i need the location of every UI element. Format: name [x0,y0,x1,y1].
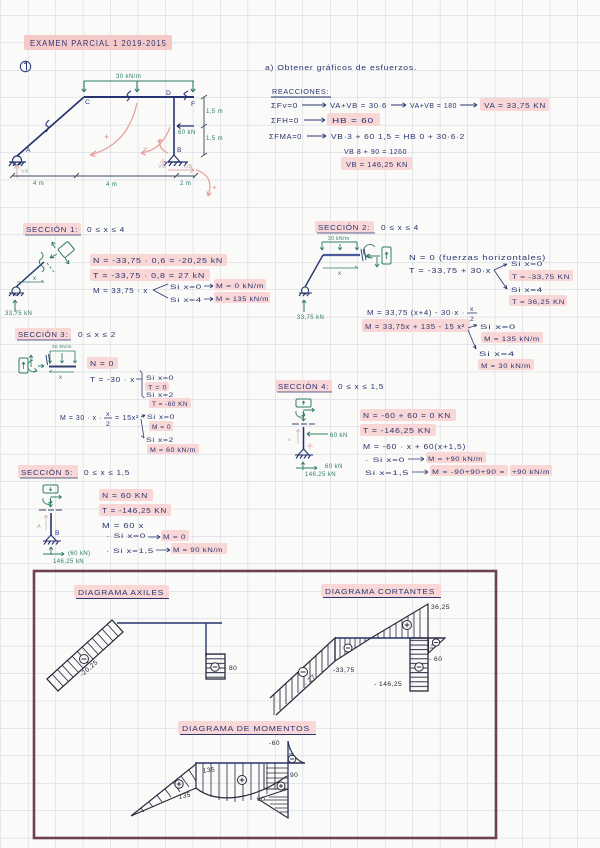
svg-text:ΣFv=0: ΣFv=0 [271,101,298,110]
svg-text:4 m: 4 m [33,181,44,187]
svg-text:Si x=0: Si x=0 [146,375,174,382]
svg-text:Si x=2: Si x=2 [146,392,174,399]
svg-text:VA+VB = 180: VA+VB = 180 [410,101,457,110]
svg-text:Si x=0: Si x=0 [511,261,543,268]
svg-text:A: A [26,147,31,154]
svg-text:HB: HB [184,164,193,170]
svg-text:T = -146,25 KN: T = -146,25 KN [363,426,431,435]
svg-text:ΣFH=0: ΣFH=0 [271,116,299,125]
svg-text:60 kN: 60 kN [330,433,348,439]
svg-text:0 ≤ x ≤ 4: 0 ≤ x ≤ 4 [381,223,419,232]
svg-text:VA+VB = 30·6: VA+VB = 30·6 [330,101,387,110]
svg-text:T = 36,25 KN: T = 36,25 KN [512,299,565,306]
svg-text:A: A [37,524,41,530]
svg-text:· Si x=1,5: · Si x=1,5 [106,548,154,555]
svg-text:M = 30 · x ·: M = 30 · x · [60,413,102,422]
svg-text:M = 30 kN/m: M = 30 kN/m [481,363,531,370]
svg-text:36,25: 36,25 [431,604,450,611]
svg-text:x: x [288,437,291,443]
svg-text:0 ≤ x ≤ 1,5: 0 ≤ x ≤ 1,5 [84,468,130,477]
svg-text:M = -60 · x + 60(x+1,5): M = -60 · x + 60(x+1,5) [363,442,466,451]
svg-text:146,25 kN: 146,25 kN [305,472,336,478]
svg-text:F: F [191,101,196,108]
svg-text:M = 33,75 (x+4) - 30·x ·: M = 33,75 (x+4) - 30·x · [367,308,465,317]
svg-text:146,25 kN: 146,25 kN [53,559,84,565]
svg-text:33,75 kN: 33,75 kN [5,311,32,317]
svg-text:60 kN: 60 kN [178,130,196,136]
svg-text:DIAGRAMA AXILES: DIAGRAMA AXILES [78,588,164,597]
svg-text:30 kN/m: 30 kN/m [116,74,141,80]
svg-text:Si x=4: Si x=4 [511,287,543,294]
svg-text:60 kN: 60 kN [325,464,343,470]
svg-text:VB = 146,25 KN: VB = 146,25 KN [346,160,408,169]
svg-text:VB·3 + 60 1,5 = HB 0 + 30·6·2: VB·3 + 60 1,5 = HB 0 + 30·6·2 [331,132,465,141]
svg-text:M = 33,75x + 135 - 15 x²: M = 33,75x + 135 - 15 x² [365,322,465,331]
svg-text:x: x [59,375,62,381]
svg-text:M = 33,75 · x: M = 33,75 · x [93,286,148,295]
svg-text:30 kN/m: 30 kN/m [52,344,72,349]
svg-text:Si x=0: Si x=0 [147,414,175,421]
svg-text:Si x=1,5: Si x=1,5 [365,470,409,477]
svg-text:D: D [166,90,171,97]
svg-text:0 ≤ x ≤ 4: 0 ≤ x ≤ 4 [87,225,125,234]
svg-text:+: + [212,183,217,192]
svg-text:N = -60 + 60 = 0 KN: N = -60 + 60 = 0 KN [363,411,451,420]
svg-text:VA = 33,75 KN: VA = 33,75 KN [484,101,546,110]
svg-text:1,5 m: 1,5 m [206,136,223,142]
svg-text:Si x=0: Si x=0 [170,284,202,291]
svg-text:80: 80 [229,665,237,672]
svg-text:Si x=4: Si x=4 [170,297,202,304]
svg-text:- 146,25: - 146,25 [374,681,402,688]
svg-text:B: B [55,530,60,537]
svg-text:N = 60 KN: N = 60 KN [102,491,148,500]
svg-text:T = -33,75 + 30·x: T = -33,75 + 30·x [409,266,491,275]
svg-text:x: x [33,276,36,282]
svg-text:x: x [106,411,110,418]
svg-text:Si x=2: Si x=2 [146,437,174,444]
svg-text:x: x [338,271,341,277]
svg-text:SECCIÓN 3:: SECCIÓN 3: [18,330,68,339]
svg-text:- 60: - 60 [429,656,442,663]
svg-text:Si x=4: Si x=4 [479,351,515,358]
svg-text:−: − [143,143,148,153]
svg-text:M = 135 kN/m: M = 135 kN/m [484,336,540,343]
svg-text:T = -33,75 · 0,8 = 27 kN: T = -33,75 · 0,8 = 27 kN [93,271,205,280]
svg-text:C: C [85,99,90,106]
svg-text:1,5 m: 1,5 m [206,109,223,115]
svg-text:T = 0: T = 0 [148,385,167,392]
svg-text:N = -33,75 · 0,6 = -20,25 kN: N = -33,75 · 0,6 = -20,25 kN [93,256,223,265]
svg-text:SECCIÓN 4:: SECCIÓN 4: [278,382,329,391]
svg-text:T = -60 KN: T = -60 KN [152,401,188,408]
svg-text:0 ≤ x ≤ 2: 0 ≤ x ≤ 2 [78,330,116,339]
svg-text:VB 8 + 90 = 1260: VB 8 + 90 = 1260 [344,147,407,156]
svg-text:M = 0: M = 0 [152,424,171,431]
svg-text:· Si x=0: · Si x=0 [365,457,405,464]
svg-text:2: 2 [106,421,110,428]
svg-text:33,75 kN: 33,75 kN [297,315,324,321]
svg-text:0 ≤ x ≤ 1,5: 0 ≤ x ≤ 1,5 [338,382,384,391]
svg-text:T = -146,25 KN: T = -146,25 KN [102,506,167,515]
svg-text:2: 2 [470,316,474,323]
svg-text:SECCIÓN 5:: SECCIÓN 5: [21,468,73,477]
svg-text:M = 0: M = 0 [163,534,186,541]
svg-text:M = 90 kN/m: M = 90 kN/m [173,547,223,554]
svg-text:B: B [177,147,182,154]
svg-text:HB = 60: HB = 60 [332,116,374,125]
svg-text:M = 0 kN/m: M = 0 kN/m [216,283,264,290]
svg-text:90: 90 [290,772,298,779]
svg-text:· Si x=0: · Si x=0 [106,533,146,540]
svg-text:+90 kN/m: +90 kN/m [512,469,550,476]
svg-text:REACCIONES:: REACCIONES: [272,87,329,96]
svg-text:(60 kN): (60 kN) [68,551,90,557]
svg-text:2 m: 2 m [180,181,191,187]
svg-text:M = 60 x: M = 60 x [102,521,144,530]
svg-text:= 15x²: = 15x² [115,413,139,422]
svg-text:M = -90+90+90 =: M = -90+90+90 = [432,469,505,476]
svg-text:VA: VA [21,169,29,175]
svg-text:T = -33,75 KN: T = -33,75 KN [512,274,570,281]
svg-text:DIAGRAMA DE MOMENTOS: DIAGRAMA DE MOMENTOS [182,724,310,733]
svg-text:4 m: 4 m [106,182,117,188]
svg-text:M = 135 kN/m: M = 135 kN/m [216,296,269,303]
svg-text:30 kN/m: 30 kN/m [328,236,349,242]
svg-text:ΣFMA=0: ΣFMA=0 [269,132,302,141]
svg-text:SECCIÓN 2:: SECCIÓN 2: [318,223,370,232]
svg-text:VB: VB [158,164,166,170]
svg-text:x: x [470,306,474,313]
svg-text:-60: -60 [269,740,280,747]
svg-text:EXAMEN PARCIAL 1 2019-2015: EXAMEN PARCIAL 1 2019-2015 [30,39,167,48]
svg-text:a) Obtener gráficos de esfuerz: a) Obtener gráficos de esfuerzos. [265,65,417,72]
svg-text:+: + [104,132,109,142]
svg-text:T = -30 · x: T = -30 · x [90,375,135,384]
svg-text:M = 60 kN/m: M = 60 kN/m [150,447,196,454]
svg-text:M = +90 kN/m: M = +90 kN/m [428,456,483,463]
svg-text:Si x=0: Si x=0 [480,324,516,331]
svg-text:SECCIÓN 1:: SECCIÓN 1: [26,225,78,234]
svg-text:-33,75: -33,75 [333,667,355,674]
svg-text:DIAGRAMA CORTANTES: DIAGRAMA CORTANTES [325,587,435,596]
svg-text:N = 0: N = 0 [90,359,114,368]
